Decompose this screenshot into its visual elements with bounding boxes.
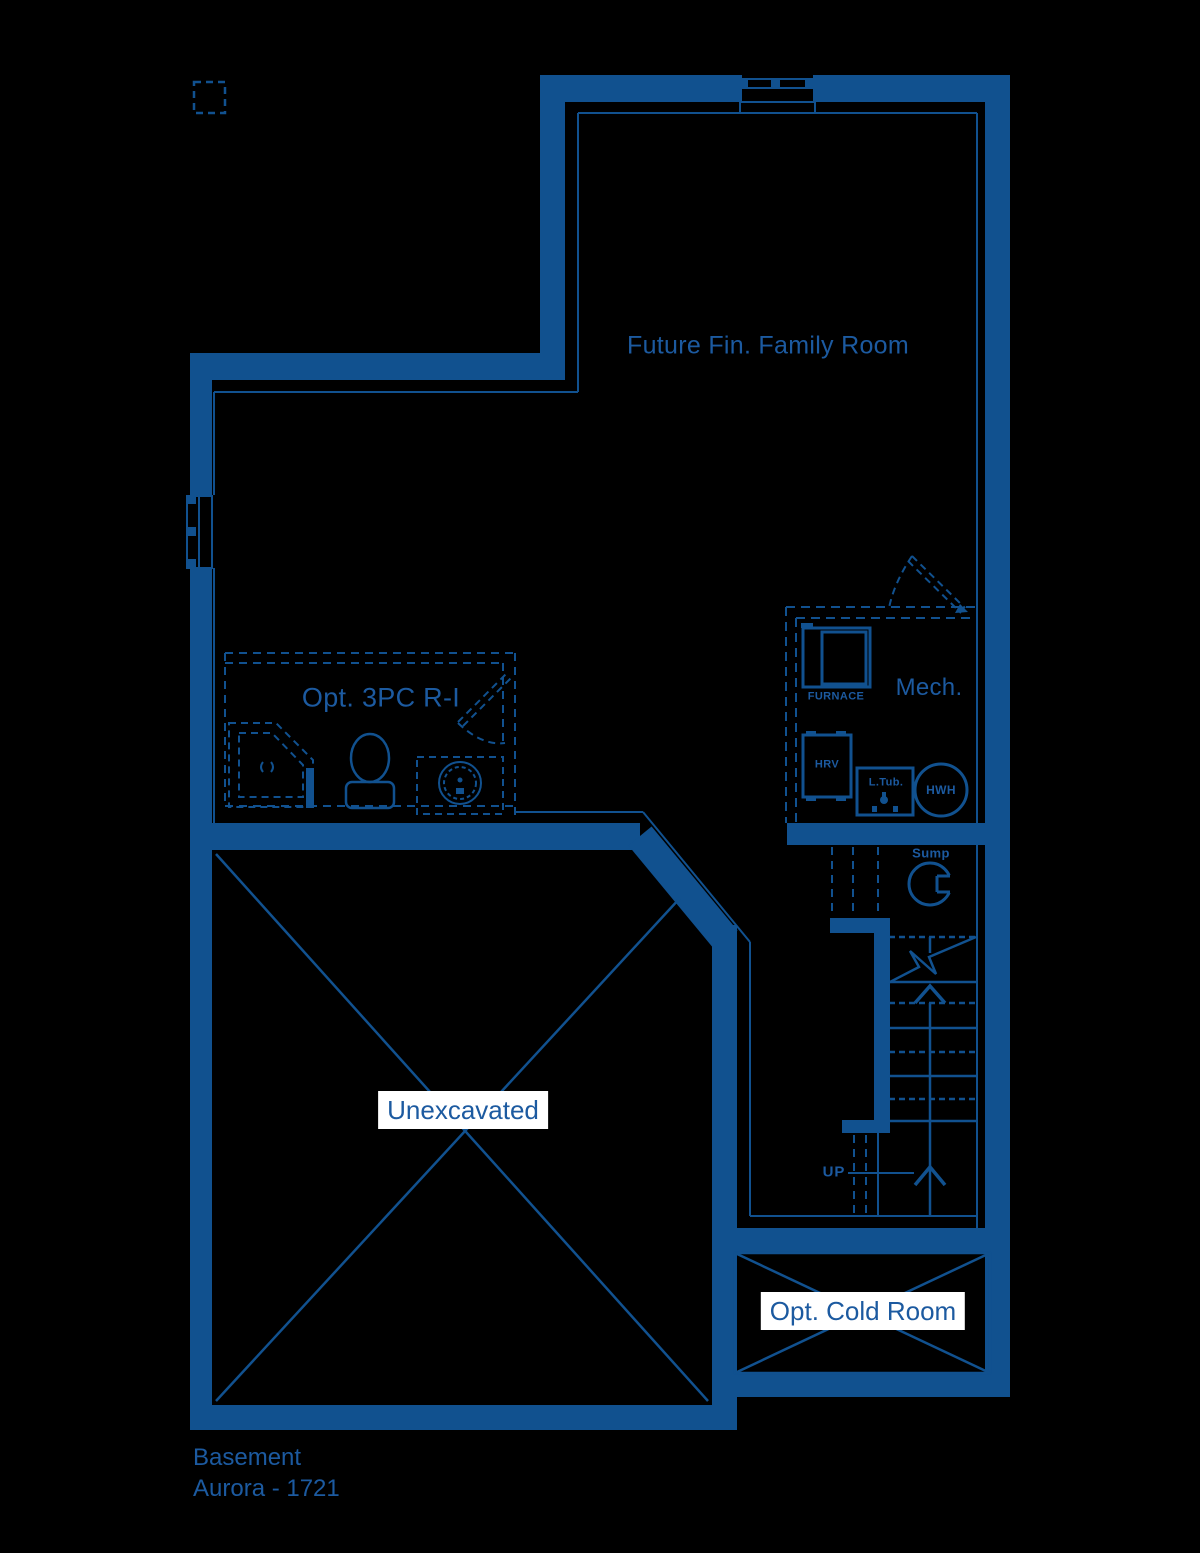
wall-stair-cap-bottom <box>842 1120 890 1133</box>
sump-pit <box>909 863 953 905</box>
bathroom-label: Opt. 3PC R-I <box>302 685 460 712</box>
wall-top-left-segment <box>540 75 742 102</box>
laundry-tub-label: L.Tub. <box>869 778 904 789</box>
stairs <box>832 847 976 1216</box>
basement-floor-plan: Future Fin. Family Room Opt. 3PC R-I Mec… <box>0 0 1200 1553</box>
laundry-tub <box>857 768 913 815</box>
wall-top-right-segment <box>813 75 1010 102</box>
furnace-label: FURNACE <box>808 692 865 703</box>
floor-plan-drawing <box>0 0 1200 1553</box>
wall-mech-bottom <box>787 823 985 845</box>
shower <box>229 723 314 808</box>
vanity-sink <box>417 757 503 814</box>
shower-wall-stub <box>306 768 314 808</box>
family-room-label: Future Fin. Family Room <box>627 334 909 359</box>
shower-drain <box>261 762 273 772</box>
wall-step <box>190 353 565 380</box>
door-arrowhead <box>955 604 968 613</box>
wall-family-left <box>540 75 565 378</box>
plan-model: Aurora - 1721 <box>193 1477 340 1501</box>
mech-label: Mech. <box>896 676 963 700</box>
wall-diagonal <box>640 836 726 940</box>
up-arrow-icon <box>915 986 945 1003</box>
wall-bottom <box>190 1405 737 1430</box>
window-top <box>739 79 815 102</box>
wall-unexcavated-right <box>712 925 737 1408</box>
stair-treads-dashed <box>889 937 976 1099</box>
mech-door-swing <box>889 556 968 613</box>
furnace <box>801 623 870 687</box>
wall-left-lower <box>190 568 212 1430</box>
window-left <box>186 495 212 568</box>
hrv-label: HRV <box>815 760 839 771</box>
wall-unexcavated-top <box>212 823 640 850</box>
wall-coldroom-bottom <box>712 1373 1010 1397</box>
exterior-walls <box>190 75 1010 1430</box>
water-heater-label: HWH <box>926 784 956 796</box>
cold-room-label: Opt. Cold Room <box>761 1292 965 1330</box>
wall-coldroom-top <box>712 1228 1010 1253</box>
plan-title: Basement <box>193 1446 301 1470</box>
reference-square <box>194 82 225 113</box>
wall-left-upper <box>190 353 212 495</box>
wall-right <box>985 75 1010 1397</box>
unexcavated-label: Unexcavated <box>378 1091 548 1129</box>
up-label: UP <box>823 1165 846 1180</box>
wall-stair-side <box>874 918 890 1133</box>
stair-break-line <box>888 937 976 983</box>
sump-label: Sump <box>912 847 950 860</box>
toilet <box>346 734 394 808</box>
